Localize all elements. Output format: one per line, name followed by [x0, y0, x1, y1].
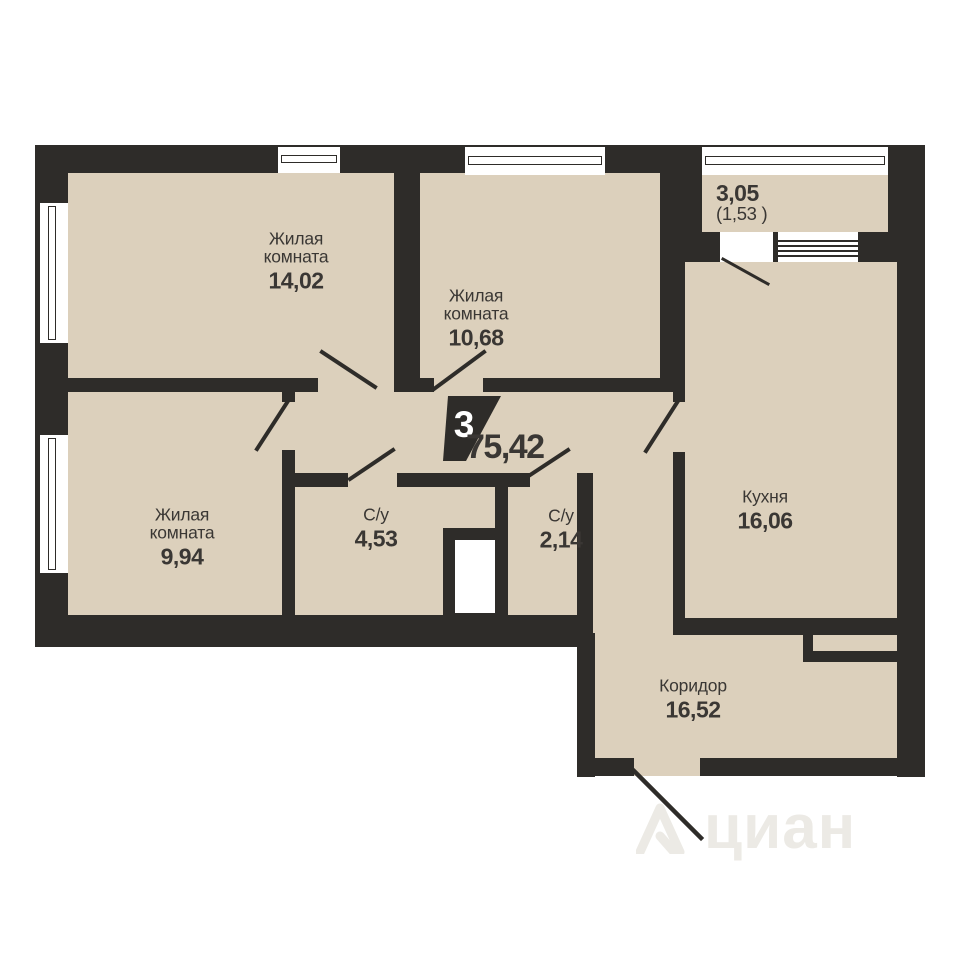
- door-swing-living3: [257, 401, 288, 449]
- door-swing-living1: [322, 352, 375, 387]
- door-swing-living2: [434, 352, 484, 389]
- room-label-living1: Жилая комната 14,02: [250, 229, 342, 294]
- room-label-balcony: 3,05 (1,53 ): [716, 182, 767, 224]
- room-area: 4,53: [355, 526, 398, 553]
- room-name: Жилая комната: [136, 505, 228, 541]
- door-swing-bath1: [350, 450, 393, 479]
- cian-logo-mark: [636, 802, 694, 854]
- room-area: 16,06: [737, 508, 792, 535]
- room-label-kitchen: Кухня 16,06: [737, 487, 792, 534]
- room-name: С/у: [540, 506, 583, 524]
- balcony-area-reduced: (1,53 ): [716, 205, 767, 224]
- door-swing-kitchen: [646, 401, 678, 451]
- room-area: 2,14: [540, 527, 583, 554]
- room-name: Жилая комната: [250, 229, 342, 265]
- room-area: 9,94: [136, 544, 228, 571]
- watermark-text: циан: [704, 792, 856, 863]
- room-name: Кухня: [737, 487, 792, 505]
- room-label-bath2: С/у 2,14: [540, 506, 583, 553]
- room-area: 10,68: [430, 325, 522, 352]
- watermark: циан: [636, 792, 856, 863]
- room-name: Коридор: [659, 676, 727, 694]
- floor-plan: 3 75,42 Жилая комната 14,02 Жилая комнат…: [0, 0, 960, 960]
- room-label-living3: Жилая комната 9,94: [136, 505, 228, 570]
- room-label-corridor: Коридор 16,52: [659, 676, 727, 723]
- room-name: С/у: [355, 505, 398, 523]
- door-swing-balcony: [723, 259, 768, 284]
- room-label-bath1: С/у 4,53: [355, 505, 398, 552]
- room-label-living2: Жилая комната 10,68: [430, 286, 522, 351]
- balcony-area: 3,05: [716, 182, 767, 205]
- total-area-label: 75,42: [466, 430, 544, 464]
- room-name: Жилая комната: [430, 286, 522, 322]
- room-area: 14,02: [250, 268, 342, 295]
- room-area: 16,52: [659, 697, 727, 724]
